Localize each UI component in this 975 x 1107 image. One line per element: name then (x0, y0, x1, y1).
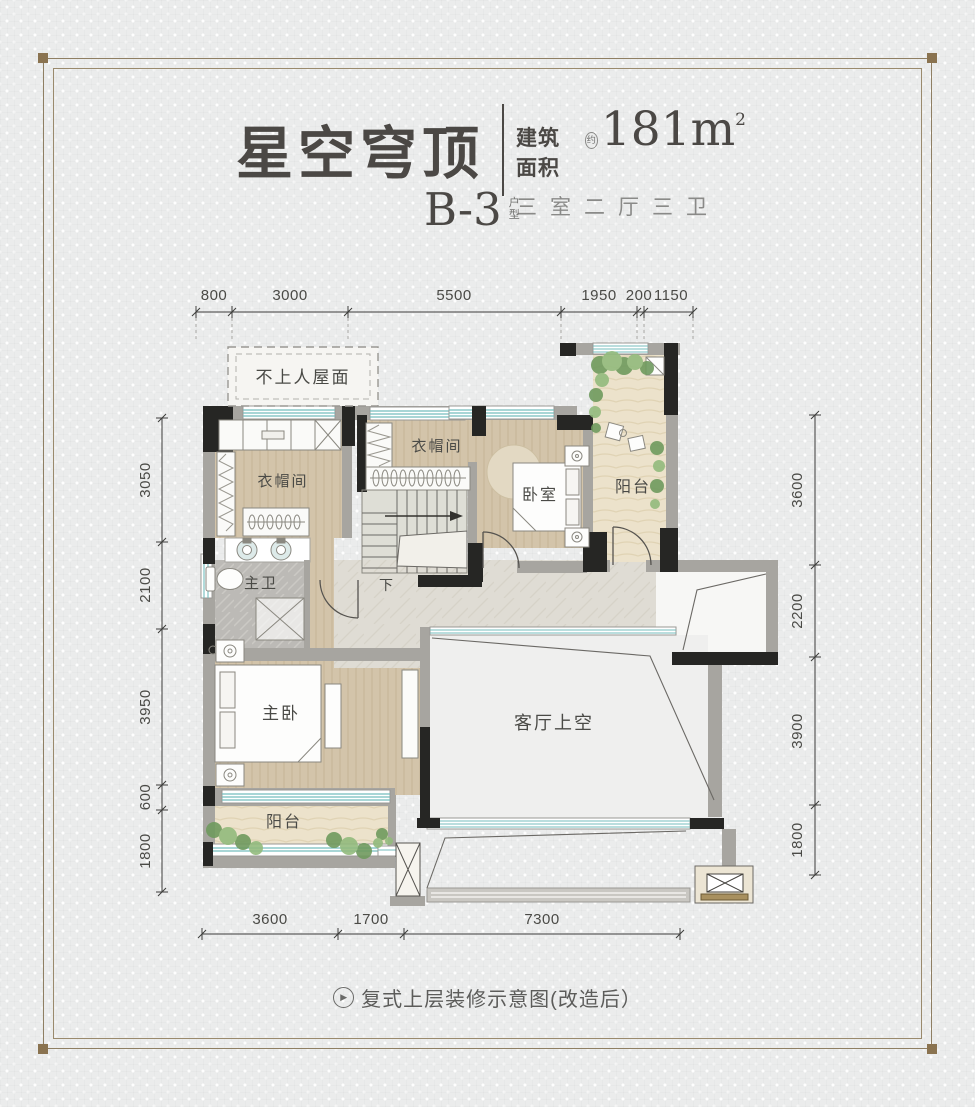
lower-floor-outline-band (427, 888, 690, 902)
label-bedroom: 卧室 (522, 486, 558, 504)
dim-top-3: 1950 (581, 287, 616, 304)
dim-left-3: 600 (137, 784, 154, 811)
bed-bench (325, 684, 341, 748)
dim-bottom-1: 1700 (353, 911, 388, 928)
caption: ▶ 复式上层装修示意图(改造后） (0, 983, 975, 1012)
dim-top-2: 5500 (436, 287, 471, 304)
dim-left-2: 3950 (137, 689, 154, 724)
window-band (427, 818, 690, 829)
floorplan-drawing: 不上人屋面 衣帽间 衣帽间 卧室 阳台 主卫 主卧 阳台 客厅上空 下 (0, 0, 975, 1107)
cloak-top-cabinet (366, 423, 392, 467)
dim-top-4: 200 (626, 287, 653, 304)
dim-right-2: 3900 (789, 713, 806, 748)
nightstand (216, 764, 244, 786)
label-cloak-top: 衣帽间 (411, 438, 462, 455)
label-roof: 不上人屋面 (256, 368, 351, 387)
cloak-left-shelf (243, 508, 309, 536)
cloak-left-cabinet (219, 420, 341, 450)
nightstand (565, 528, 589, 547)
dim-top-0: 800 (201, 287, 228, 304)
window-band (222, 790, 390, 803)
label-living-void: 客厅上空 (514, 713, 594, 733)
cloak-top-hanger-rail (366, 467, 470, 490)
label-balcony-bottom: 阳台 (266, 813, 302, 831)
shower (256, 598, 304, 640)
dim-top-5: 1150 (654, 287, 688, 304)
nightstand (565, 446, 589, 466)
toilet (206, 567, 243, 591)
label-master-bedroom: 主卧 (262, 704, 300, 723)
tv-cabinet (402, 670, 418, 758)
dim-right-1: 2200 (789, 593, 806, 628)
cloak-left-hanger-rail (217, 452, 235, 536)
dim-bottom-2: 7300 (524, 911, 559, 928)
dim-right-3: 1800 (789, 822, 806, 857)
window-band (430, 627, 676, 635)
elevator-shaft (695, 866, 753, 903)
play-icon: ▶ (333, 987, 354, 1008)
floorplan-page: 星空穹顶 建筑面积 约 181m 2 三室二厅三卫 B-3 户 型 (0, 0, 975, 1107)
duct-shaft (396, 843, 420, 896)
caption-text: 复式上层装修示意图(改造后） (361, 983, 642, 1012)
dim-left-4: 1800 (137, 833, 154, 868)
label-cloak-left: 衣帽间 (257, 473, 308, 490)
window-band (378, 846, 396, 856)
dim-left-0: 3050 (137, 462, 154, 497)
dim-top-1: 3000 (272, 287, 307, 304)
dim-bottom-0: 3600 (252, 911, 287, 928)
dim-right-0: 3600 (789, 472, 806, 507)
window-band (593, 343, 648, 354)
dim-left-1: 2100 (137, 567, 154, 602)
nightstand (216, 640, 244, 662)
label-master-bath: 主卫 (244, 575, 278, 592)
window-band (243, 406, 335, 419)
label-stairs-down: 下 (379, 577, 395, 593)
window-band (449, 406, 554, 419)
label-balcony-top: 阳台 (615, 478, 651, 496)
